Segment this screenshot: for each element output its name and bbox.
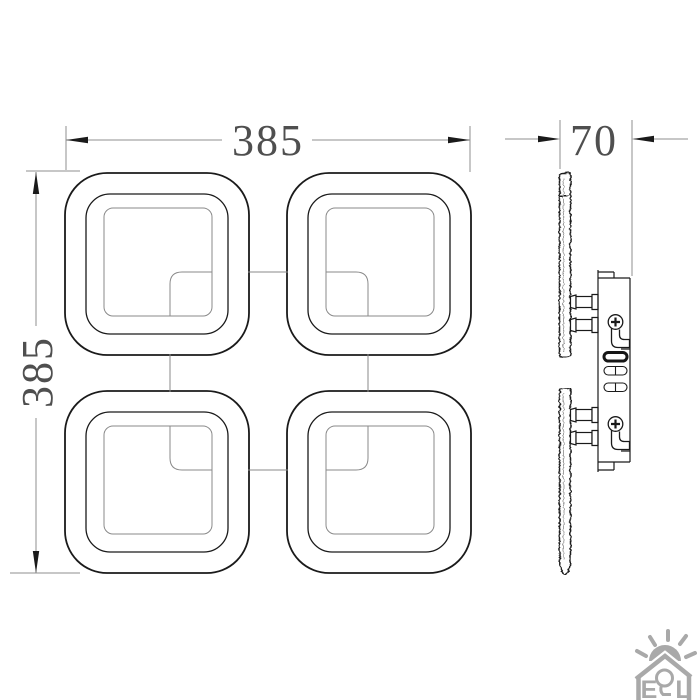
arrowhead-top: [33, 172, 39, 194]
plate-top-edge: [598, 272, 630, 278]
module-top-left: [65, 173, 249, 355]
inner-frame: [104, 426, 212, 534]
module-bottom-left: [65, 391, 249, 573]
mounting-post: [571, 295, 599, 310]
mesh-ring: [65, 391, 249, 573]
clip-inner: [620, 330, 630, 340]
inner-frame: [104, 208, 212, 316]
module-bottom-right: [287, 391, 471, 573]
diffuser-panel: [308, 194, 450, 334]
technical-drawing-page: 385 385 70: [0, 0, 700, 700]
logo-letter-e: E: [641, 676, 658, 700]
plate-bottom-edge: [598, 462, 630, 470]
lightbulb-icon: [657, 670, 673, 695]
arrowhead-left: [538, 136, 560, 142]
connector-arms: [170, 272, 368, 470]
corner-detail: [326, 272, 368, 316]
mounting-post: [571, 431, 599, 446]
mesh-ring: [287, 173, 471, 355]
corner-detail: [170, 426, 212, 470]
depth-dimension: 70: [505, 116, 688, 276]
diffuser-panel: [86, 194, 228, 334]
arrowhead-bottom: [33, 551, 39, 573]
drawing-svg: 385 385 70: [0, 0, 700, 700]
slot-filled: [604, 353, 627, 362]
height-value: 385: [13, 336, 62, 408]
corner-detail: [170, 272, 212, 316]
depth-value: 70: [570, 116, 618, 165]
arrowhead-right: [632, 136, 654, 142]
brand-logo: E L: [636, 631, 695, 700]
mounting-posts: [571, 295, 599, 446]
clip-inner: [620, 432, 630, 442]
mounting-post: [571, 318, 599, 333]
module-top-right: [287, 173, 471, 355]
height-dimension: 385: [10, 171, 80, 573]
diffuser-panel: [86, 412, 228, 552]
panel-edge-top: [560, 173, 571, 357]
logo-letter-l: L: [675, 676, 690, 700]
width-value: 385: [232, 116, 304, 165]
mesh-ring: [65, 173, 249, 355]
panel-edge-bottom: [560, 389, 571, 575]
mesh-ring: [287, 391, 471, 573]
corner-detail: [326, 426, 368, 470]
diffuser-panel: [308, 412, 450, 552]
screw-upper: [608, 315, 630, 349]
inner-frame: [326, 208, 434, 316]
panel-profile: [560, 173, 571, 575]
mounting-post: [571, 408, 599, 423]
arrowhead-right: [448, 137, 470, 143]
inner-frame: [326, 426, 434, 534]
front-view: [65, 173, 471, 573]
width-dimension: 385: [66, 116, 470, 172]
side-view: [560, 173, 631, 575]
plate-slots: [604, 353, 627, 392]
arrowhead-left: [66, 137, 88, 143]
screw-lower: [608, 417, 630, 451]
